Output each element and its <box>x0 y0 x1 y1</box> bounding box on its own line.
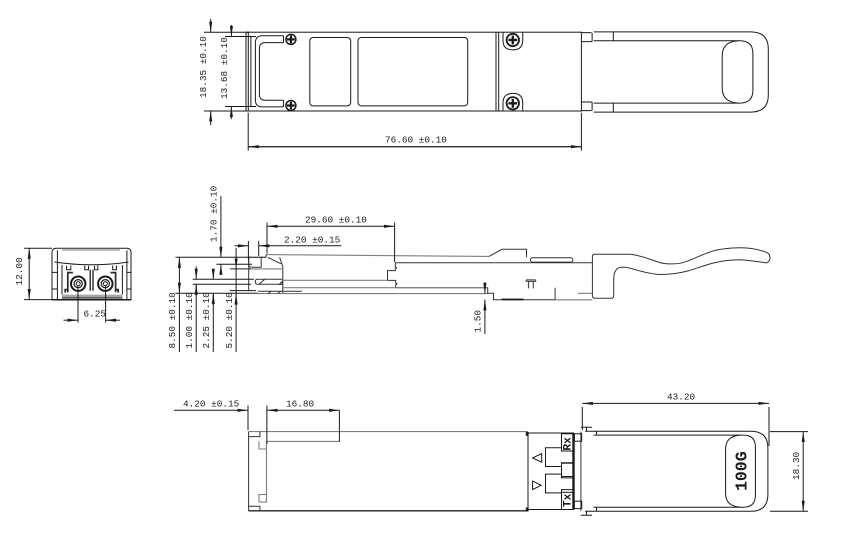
svg-text:1.00 ±0.10: 1.00 ±0.10 <box>184 292 195 349</box>
svg-text:1.70 ±0.10: 1.70 ±0.10 <box>209 185 220 242</box>
svg-text:16.80: 16.80 <box>286 398 315 409</box>
svg-text:2.20 ±0.15: 2.20 ±0.15 <box>284 234 341 245</box>
svg-text:12.00: 12.00 <box>14 257 25 286</box>
svg-text:5.20 ±0.10: 5.20 ±0.10 <box>224 292 235 349</box>
svg-text:2.25 ±0.10: 2.25 ±0.10 <box>201 292 212 349</box>
svg-text:13.68 ±0.10: 13.68 ±0.10 <box>219 37 230 99</box>
svg-text:8.50 ±0.10: 8.50 ±0.10 <box>167 292 178 349</box>
svg-text:43.20: 43.20 <box>667 392 696 403</box>
svg-text:18.30: 18.30 <box>791 451 802 480</box>
svg-text:4.20 ±0.15: 4.20 ±0.15 <box>183 398 240 409</box>
svg-text:18.35 ±0.10: 18.35 ±0.10 <box>198 36 209 98</box>
svg-text:76.60 ±0.10: 76.60 ±0.10 <box>385 135 447 146</box>
svg-text:6.25: 6.25 <box>84 309 107 320</box>
svg-text:1.50: 1.50 <box>473 310 484 333</box>
svg-text:100G: 100G <box>733 451 752 491</box>
svg-text:29.60 ±0.10: 29.60 ±0.10 <box>305 215 367 226</box>
